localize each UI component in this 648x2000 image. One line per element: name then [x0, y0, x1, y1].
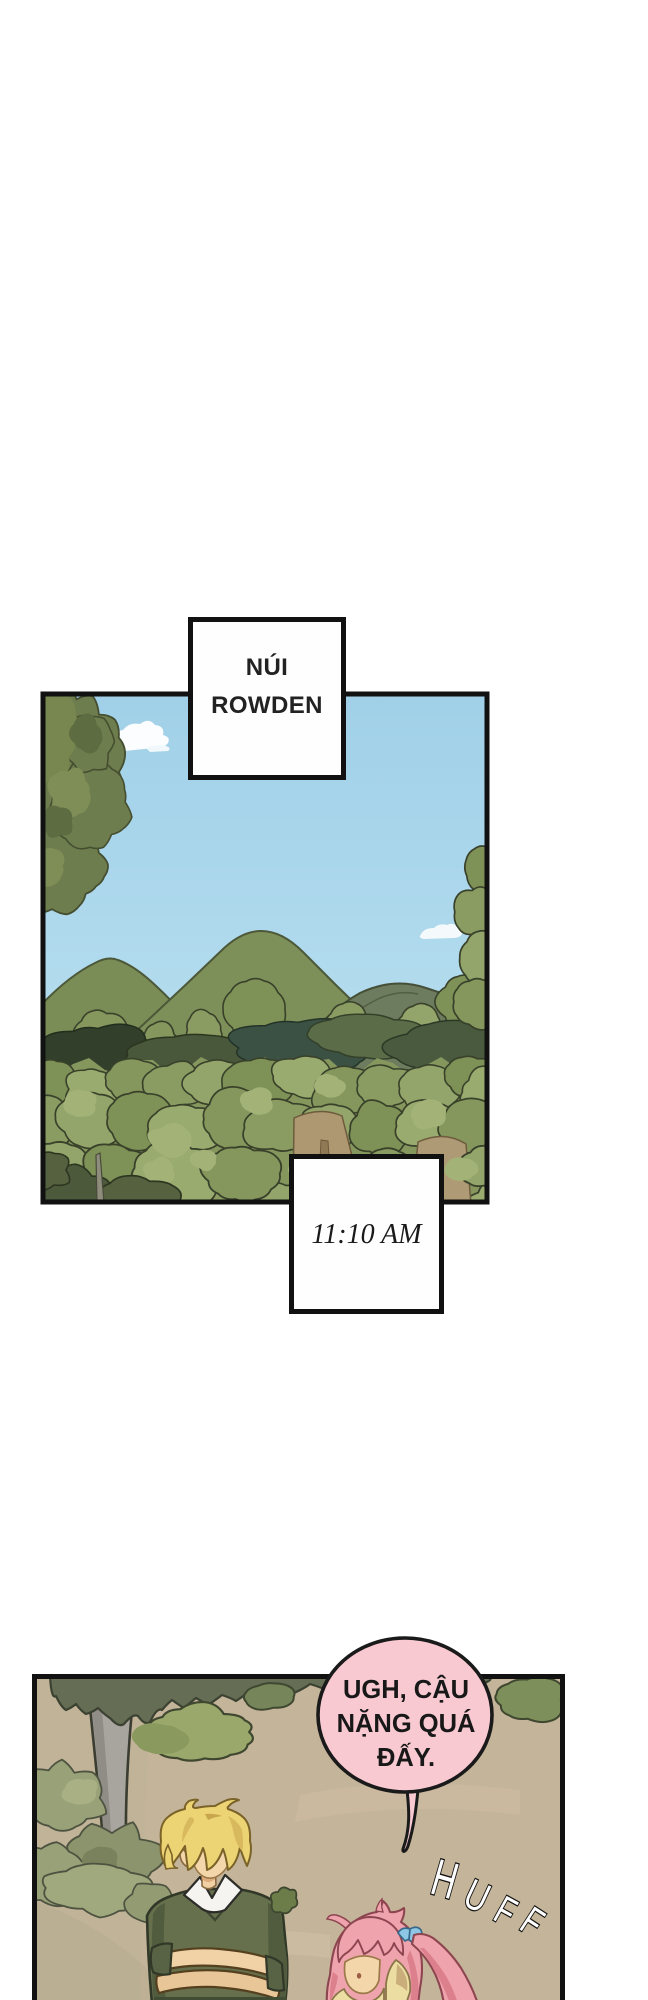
- svg-text:ĐẤY.: ĐẤY.: [377, 1743, 435, 1772]
- svg-text:NẶNG QUÁ: NẶNG QUÁ: [337, 1709, 476, 1738]
- svg-text:UGH, CẬU: UGH, CẬU: [343, 1674, 469, 1704]
